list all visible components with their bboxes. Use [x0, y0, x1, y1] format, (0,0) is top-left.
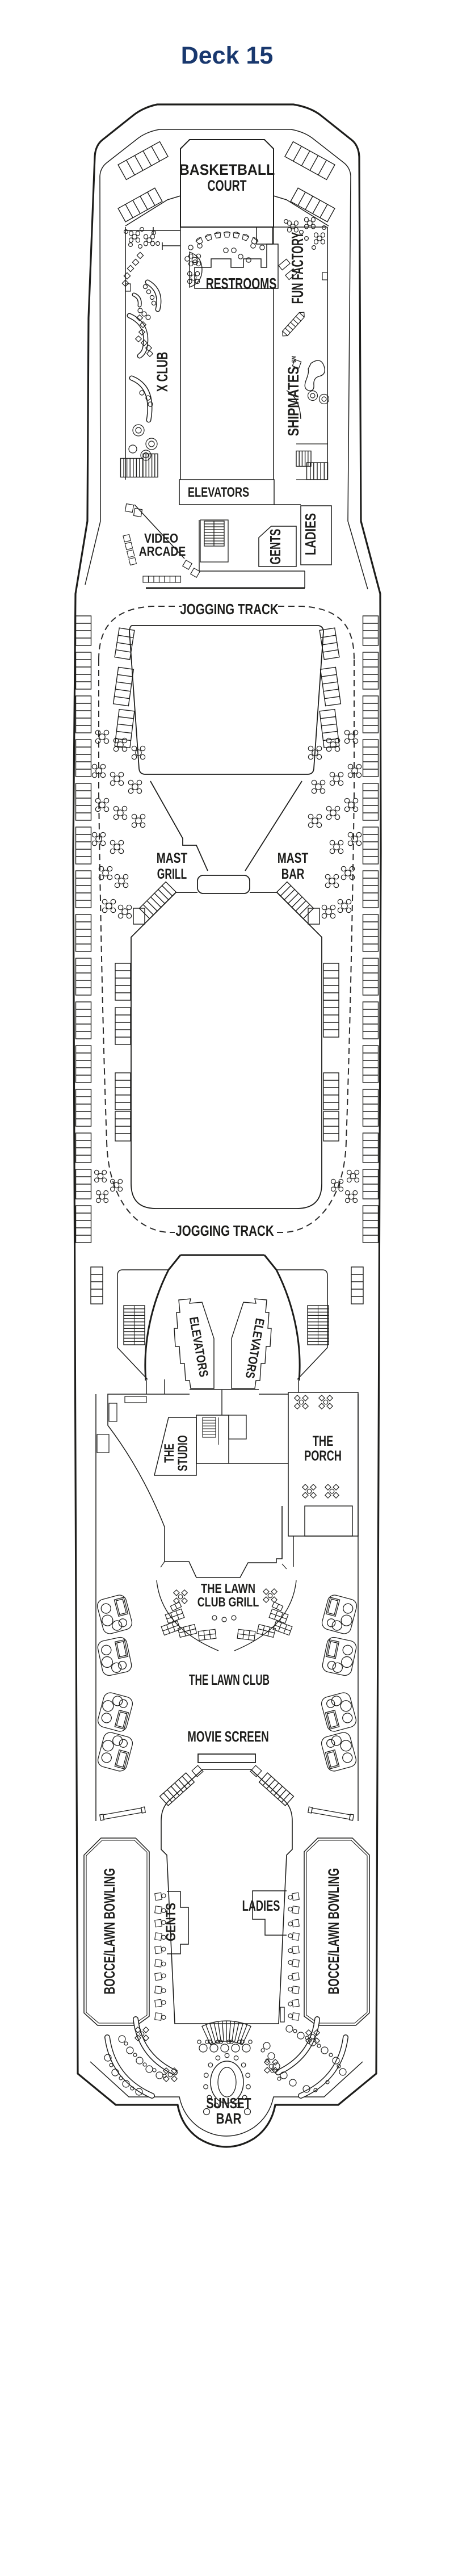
svg-text:ARCADE: ARCADE — [139, 545, 186, 559]
svg-text:THE LAWN: THE LAWN — [201, 1581, 255, 1596]
svg-text:JOGGING TRACK: JOGGING TRACK — [180, 601, 278, 618]
svg-text:STUDIO: STUDIO — [175, 1435, 191, 1471]
svg-text:PORCH: PORCH — [304, 1448, 342, 1464]
svg-text:COURT: COURT — [207, 177, 247, 194]
svg-text:MOVIE SCREEN: MOVIE SCREEN — [187, 1728, 268, 1745]
svg-text:GENTS: GENTS — [267, 529, 284, 565]
svg-text:BAR: BAR — [216, 2111, 241, 2127]
svg-text:BASKETBALL: BASKETBALL — [179, 162, 275, 178]
svg-text:THE: THE — [313, 1433, 333, 1449]
svg-text:LADIES: LADIES — [302, 513, 319, 555]
svg-text:JOGGING TRACK: JOGGING TRACK — [175, 1223, 274, 1239]
svg-text:ELEVATORS: ELEVATORS — [188, 485, 249, 500]
svg-text:Deck 15: Deck 15 — [181, 42, 274, 69]
svg-text:GRILL: GRILL — [157, 866, 187, 882]
svg-text:BOCCE/LAWN BOWLING: BOCCE/LAWN BOWLING — [325, 1868, 342, 1994]
svg-text:CLUB GRILL: CLUB GRILL — [197, 1595, 259, 1610]
svg-text:X CLUB: X CLUB — [154, 352, 171, 392]
svg-text:SHIPMATES: SHIPMATES — [285, 367, 302, 437]
svg-text:MAST: MAST — [278, 850, 309, 866]
svg-text:THE LAWN CLUB: THE LAWN CLUB — [189, 1671, 270, 1688]
svg-text:LADIES: LADIES — [242, 1898, 280, 1914]
svg-text:SUNSET: SUNSET — [206, 2095, 251, 2111]
svg-text:FUN FACTORY: FUN FACTORY — [289, 232, 307, 304]
svg-text:MAST: MAST — [157, 850, 188, 866]
svg-text:VIDEO: VIDEO — [144, 532, 178, 546]
svg-text:GENTS: GENTS — [163, 1903, 178, 1941]
svg-text:BOCCE/LAWN BOWLING: BOCCE/LAWN BOWLING — [101, 1868, 118, 1994]
svg-text:RESTROOMS: RESTROOMS — [206, 275, 276, 293]
svg-text:THE: THE — [162, 1444, 177, 1463]
svg-text:BAR: BAR — [281, 866, 305, 882]
